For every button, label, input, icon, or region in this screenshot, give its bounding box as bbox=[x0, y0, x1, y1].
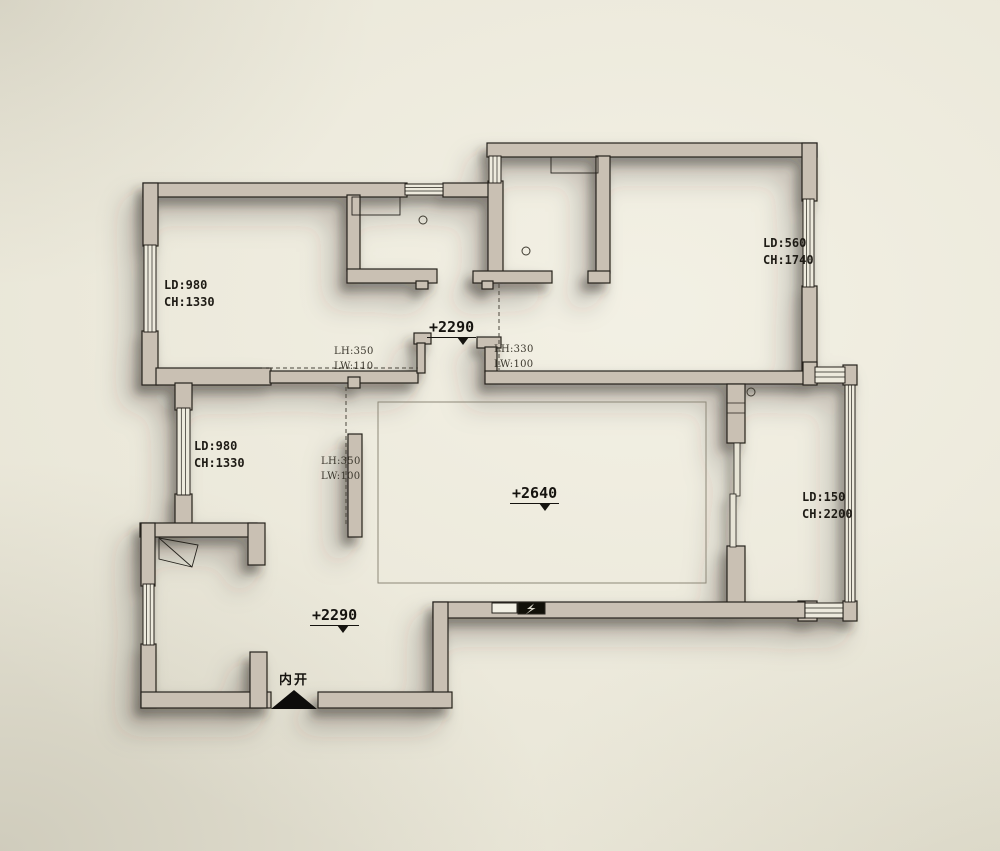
building-shadow-group bbox=[140, 143, 857, 708]
wall-cap bbox=[588, 271, 610, 283]
elevation-hall-upper: +2290 bbox=[427, 318, 476, 338]
window-midleft bbox=[177, 408, 190, 495]
wall bbox=[443, 183, 490, 197]
wall bbox=[347, 195, 360, 271]
wall bbox=[433, 602, 805, 618]
wall-pier bbox=[727, 546, 745, 604]
circle-marker bbox=[419, 216, 427, 224]
floorplan-page: LD:980 CH:1330 LD:560 CH:1740 LD:980 CH:… bbox=[0, 0, 1000, 851]
room-label-top-right: LD:560 CH:1740 bbox=[763, 235, 814, 269]
circle-marker bbox=[522, 247, 530, 255]
wall bbox=[143, 183, 407, 197]
wall bbox=[141, 523, 155, 586]
wall-pier bbox=[727, 384, 745, 443]
circle-marker bbox=[747, 388, 755, 396]
wall bbox=[487, 143, 817, 157]
wall bbox=[140, 523, 257, 537]
wall bbox=[156, 368, 271, 385]
walls-layer bbox=[140, 143, 857, 708]
wall bbox=[175, 383, 192, 410]
wall-notch bbox=[348, 377, 360, 388]
elevation-triangle-icon bbox=[539, 503, 551, 511]
wall bbox=[596, 156, 610, 273]
sliding-door bbox=[730, 443, 740, 547]
balcony-window-bottom bbox=[805, 603, 843, 618]
wall-notch bbox=[416, 281, 428, 289]
beam-label-mid: LH:350 LW:100 bbox=[321, 454, 361, 484]
wall bbox=[143, 183, 158, 246]
elevation-triangle-icon bbox=[457, 337, 469, 345]
beam-label-hall: LH:330 LW:100 bbox=[494, 342, 534, 372]
elevation-hall-lower: +2290 bbox=[310, 606, 359, 626]
wall bbox=[802, 143, 817, 201]
balcony-post bbox=[843, 601, 857, 621]
wall-pier bbox=[250, 652, 267, 708]
wall-notch bbox=[482, 281, 493, 289]
window-bottomleft bbox=[143, 584, 154, 645]
room-label-mid-left: LD:980 CH:1330 bbox=[194, 438, 245, 472]
wall bbox=[417, 343, 425, 373]
room-label-top-left: LD:980 CH:1330 bbox=[164, 277, 215, 311]
wall-pier bbox=[248, 523, 265, 565]
wall bbox=[485, 371, 817, 384]
door-swing-triangle bbox=[271, 690, 317, 709]
wall bbox=[175, 494, 192, 524]
electrical-panel bbox=[492, 602, 545, 615]
window-hall-jog bbox=[489, 156, 501, 183]
window-left-upper bbox=[144, 245, 156, 332]
flue-outline bbox=[551, 157, 598, 173]
door-open-inward-note: 内开 bbox=[279, 669, 309, 688]
window-top bbox=[405, 184, 443, 195]
floorplan-canvas bbox=[0, 0, 1000, 851]
wall bbox=[318, 692, 452, 708]
wall bbox=[802, 286, 817, 372]
wall bbox=[348, 434, 362, 537]
elevation-living: +2640 bbox=[510, 484, 559, 504]
beam-label-left: LH:350 LW:110 bbox=[334, 344, 374, 374]
wall bbox=[488, 181, 503, 278]
balcony-window-top bbox=[815, 367, 845, 383]
flue-symbol bbox=[159, 538, 198, 567]
room-label-balcony: LD:150 CH:2200 bbox=[802, 489, 853, 523]
annotation-layer bbox=[159, 157, 755, 709]
elevation-triangle-icon bbox=[337, 625, 349, 633]
